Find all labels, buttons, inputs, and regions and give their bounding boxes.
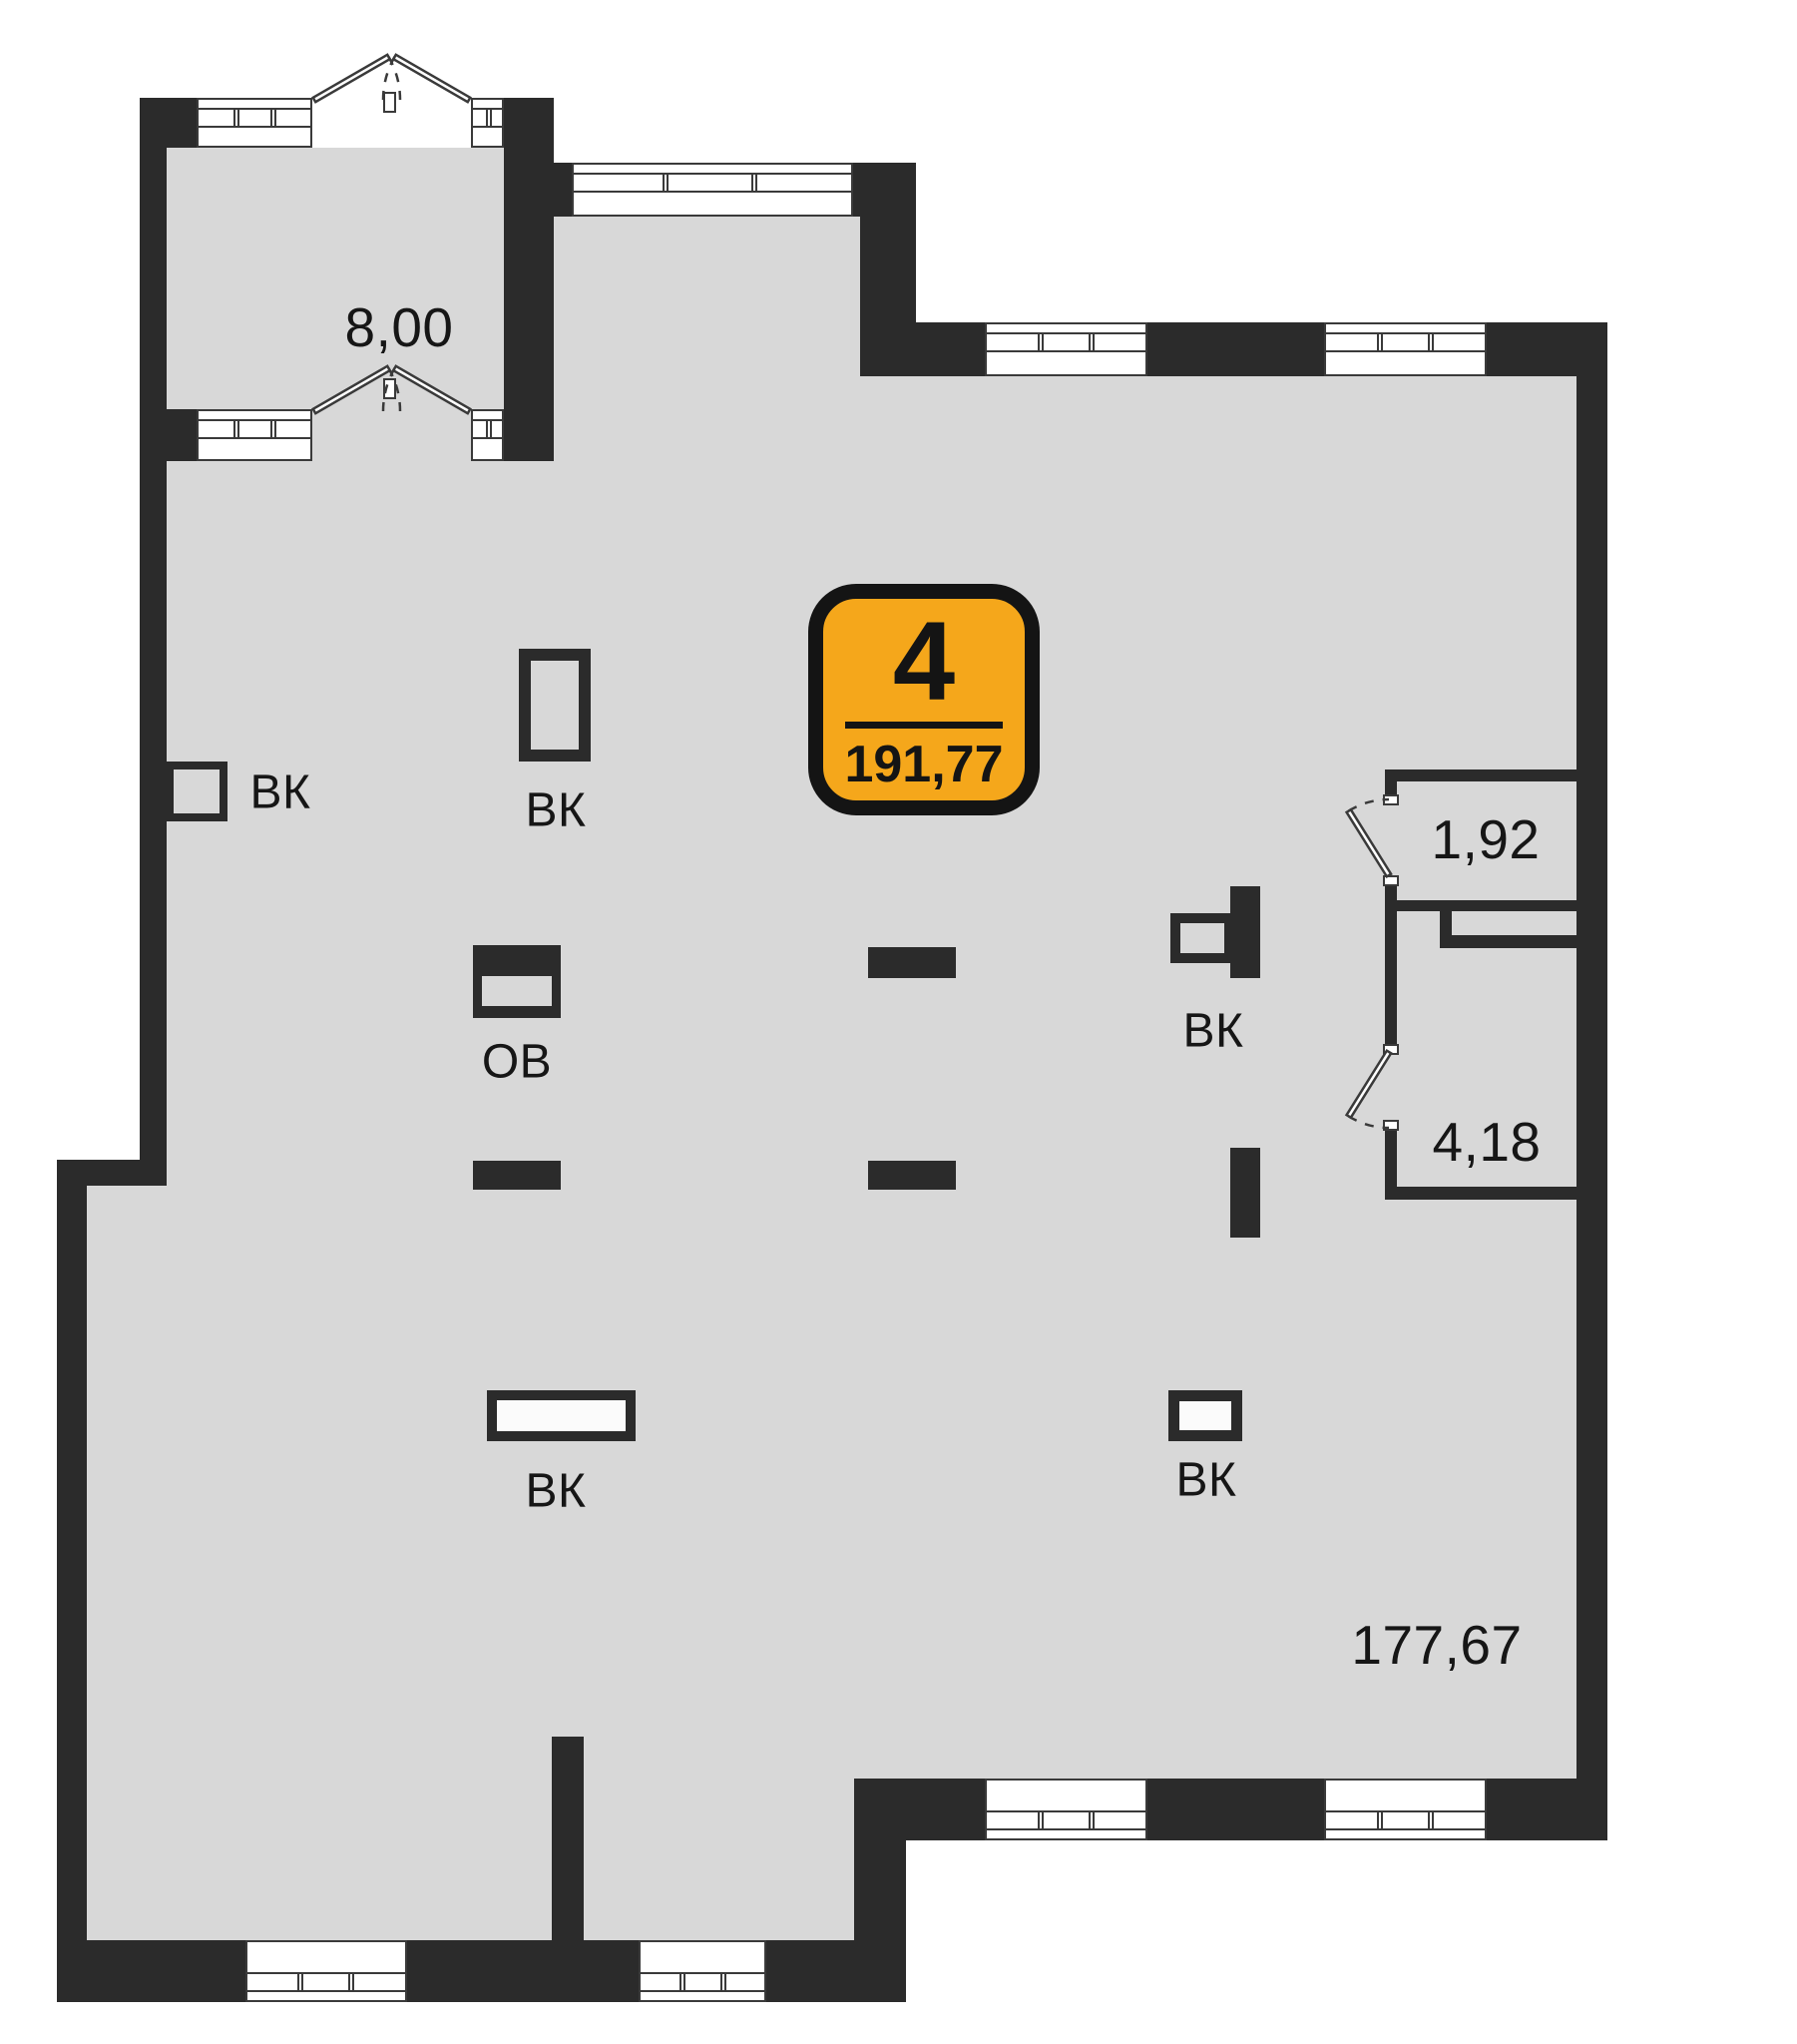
unit-area: 191,77 [844, 739, 1003, 790]
duct-label: ОВ [482, 1035, 552, 1090]
door-leaf-icon [1347, 1051, 1392, 1118]
badge-divider [845, 722, 1003, 729]
room-area-label-main: 177,67 [1351, 1613, 1522, 1677]
door-swings-layer [0, 0, 1797, 2044]
unit-badge[interactable]: 4 191,77 [808, 584, 1040, 815]
duct-label: ВК [250, 766, 311, 820]
unit-rooms-count: 4 [893, 609, 955, 715]
door-leaf-icon [313, 55, 390, 102]
door-leaf-icon [1347, 809, 1392, 876]
door-leaf-icon [393, 55, 470, 102]
duct-label: ВК [1183, 1004, 1244, 1059]
room-area-label: 1,92 [1431, 807, 1540, 871]
door-leaf-icon [393, 366, 470, 413]
duct-label: ВК [526, 1464, 587, 1519]
room-area-label: 4,18 [1432, 1110, 1541, 1174]
duct-label: ВК [1176, 1453, 1237, 1508]
door-swing-arc-icon [1349, 1117, 1389, 1129]
floor-plan-canvas: 8,00 ВК ВК ОВ ВК 1,92 4,18 ВК ВК 177,67 … [0, 0, 1797, 2044]
door-swing-arc-icon [1349, 799, 1389, 811]
room-area-label-balcony: 8,00 [344, 295, 453, 359]
door-leaf-icon [313, 366, 390, 413]
duct-label: ВК [526, 783, 587, 838]
